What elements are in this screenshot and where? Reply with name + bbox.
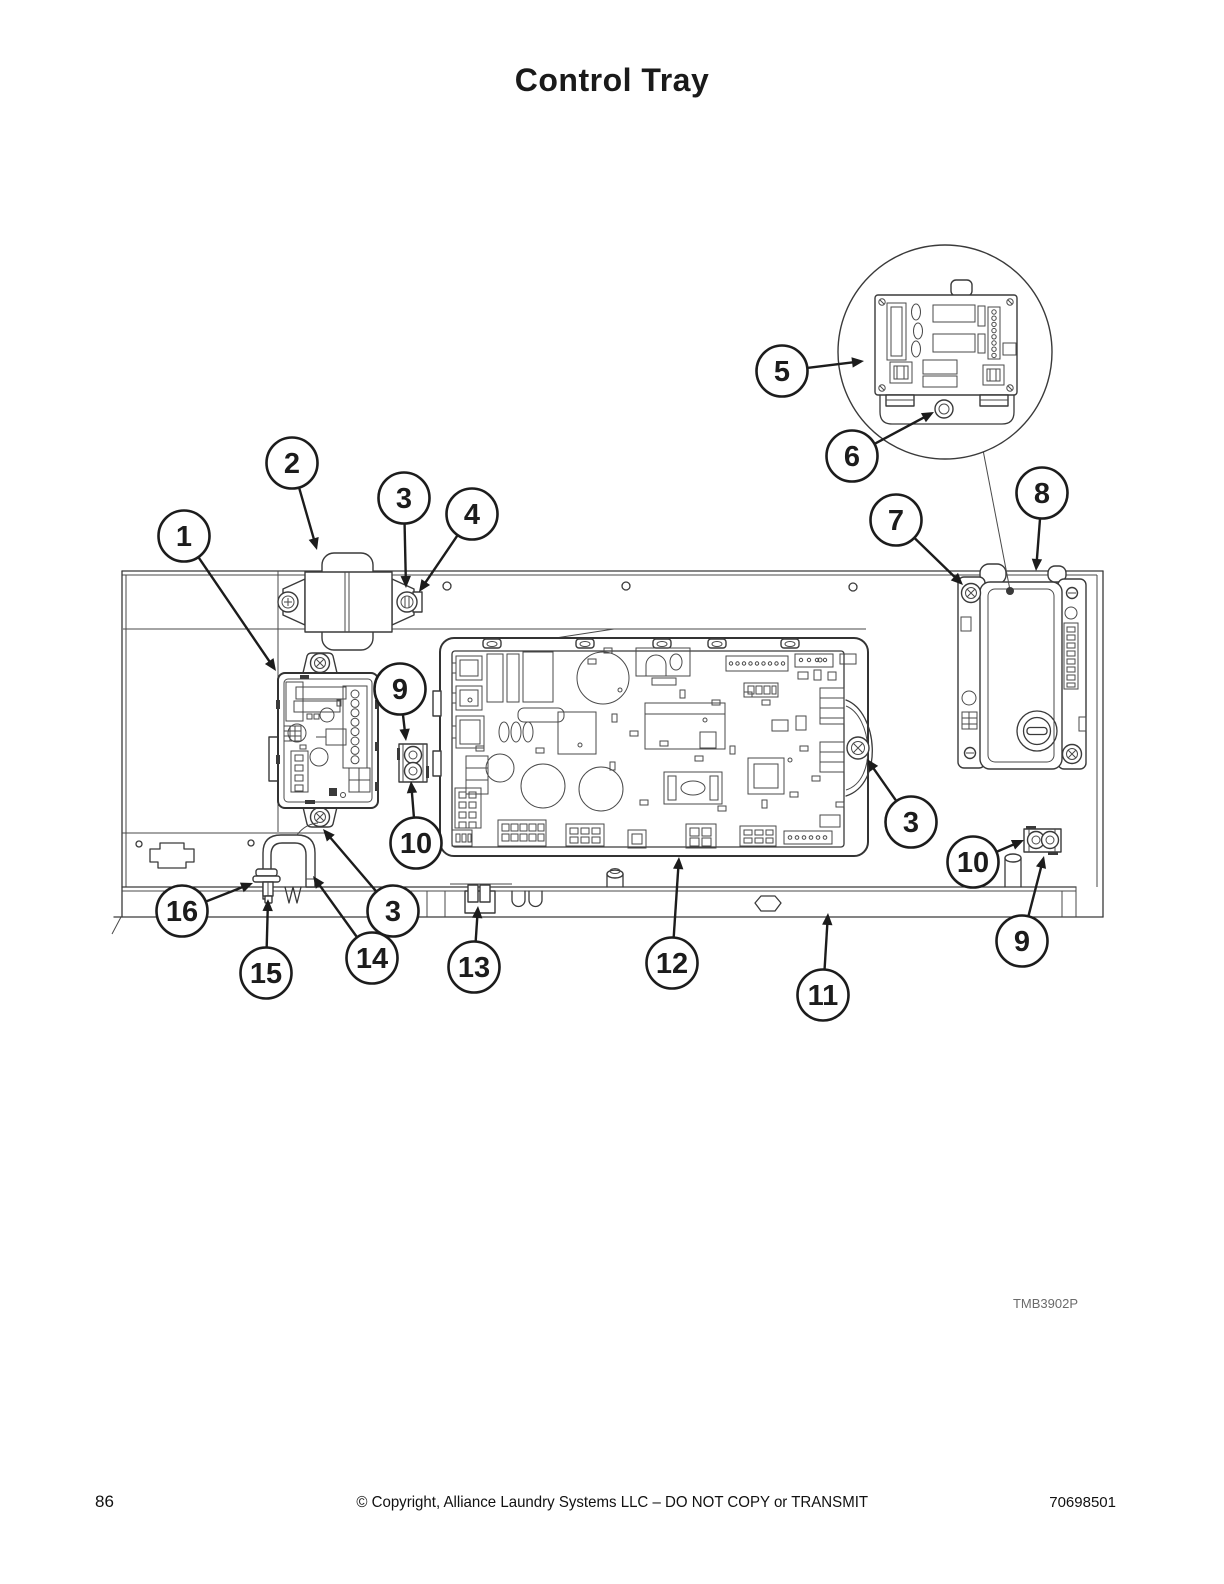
terminal-block-left <box>397 744 429 782</box>
figure-code: TMB3902P <box>1013 1296 1078 1311</box>
screw-right-3-4 <box>397 592 417 612</box>
callout-10: 10 <box>391 781 442 869</box>
document-number: 70698501 <box>1049 1494 1116 1511</box>
control-tray-diagram: 1234567891031091615143131211 <box>0 0 1224 1584</box>
page-footer: 86 © Copyright, Alliance Laundry Systems… <box>0 1492 1224 1522</box>
svg-text:7: 7 <box>888 505 904 537</box>
callout-1: 1 <box>159 511 277 672</box>
callout-8: 8 <box>1017 468 1068 572</box>
svg-text:3: 3 <box>903 807 919 839</box>
callout-11: 11 <box>798 913 849 1021</box>
svg-text:16: 16 <box>166 896 198 928</box>
callout-13: 13 <box>449 906 500 993</box>
svg-text:5: 5 <box>774 356 790 388</box>
connector-cutout <box>150 843 194 868</box>
svg-text:13: 13 <box>458 952 490 984</box>
svg-text:10: 10 <box>957 847 989 879</box>
push-fastener <box>253 869 280 903</box>
callout-9: 9 <box>997 856 1048 967</box>
display-module <box>958 564 1086 769</box>
svg-text:9: 9 <box>392 674 408 706</box>
screw-left <box>278 592 298 612</box>
svg-text:12: 12 <box>656 948 688 980</box>
manual-page: Control Tray <box>0 0 1224 1584</box>
svg-text:3: 3 <box>385 896 401 928</box>
svg-text:2: 2 <box>284 448 300 480</box>
terminal-block-right <box>1024 826 1061 855</box>
svg-text:4: 4 <box>464 499 480 531</box>
callout-4: 4 <box>419 489 498 593</box>
transformer <box>278 553 422 650</box>
svg-text:1: 1 <box>176 521 192 553</box>
module-rear-view <box>875 280 1017 424</box>
main-control-board <box>433 638 872 856</box>
svg-text:14: 14 <box>356 943 388 975</box>
callout-15: 15 <box>241 899 292 999</box>
svg-text:10: 10 <box>400 828 432 860</box>
svg-text:8: 8 <box>1034 478 1050 510</box>
callout-12: 12 <box>647 857 698 989</box>
callout-3: 3 <box>867 759 937 848</box>
small-control-board <box>269 653 379 827</box>
svg-text:9: 9 <box>1014 926 1030 958</box>
svg-text:15: 15 <box>250 958 282 990</box>
callout-9: 9 <box>375 664 426 742</box>
svg-text:6: 6 <box>844 441 860 473</box>
callout-2: 2 <box>267 438 319 551</box>
svg-text:3: 3 <box>396 483 412 515</box>
svg-text:11: 11 <box>808 980 839 1012</box>
copyright-notice: © Copyright, Alliance Laundry Systems LL… <box>0 1494 1224 1512</box>
detail-bubble <box>838 245 1052 595</box>
